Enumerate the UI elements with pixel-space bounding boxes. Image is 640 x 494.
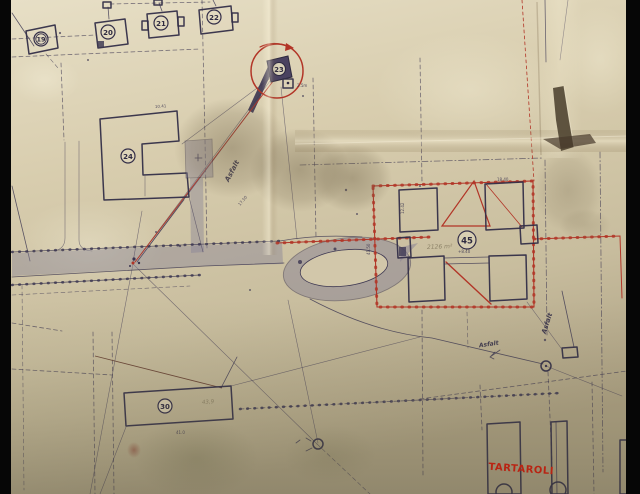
dimension-label: 18.40	[497, 177, 509, 182]
building-45-label: 45	[461, 236, 473, 246]
building-22-label: 22	[209, 14, 219, 22]
stain	[312, 144, 392, 212]
building-19-label: 19	[36, 36, 46, 44]
survey-dot	[249, 289, 251, 291]
building-24-label: 24	[123, 153, 133, 161]
site-plan-svg: 19 20 21 22 23 24 45 30 Asfalt Asfalt As…	[0, 0, 640, 494]
survey-dot	[179, 245, 181, 247]
photo-left-edge	[0, 0, 11, 494]
building-20-label: 20	[103, 29, 113, 37]
survey-dot	[419, 185, 421, 187]
building-21-label: 21	[156, 20, 166, 28]
paper-light-patch	[15, 200, 165, 290]
paper-light-patch	[10, 56, 80, 104]
building-45-notch-fill	[399, 247, 406, 256]
dimension-label: 12.42	[400, 202, 405, 214]
benchmark-dot	[287, 82, 290, 85]
site-plan-photo: 19 20 21 22 23 24 45 30 Asfalt Asfalt As…	[0, 0, 640, 494]
survey-dot	[87, 59, 89, 61]
loop-mark	[334, 248, 337, 251]
survey-dot	[59, 32, 61, 34]
survey-dot	[302, 95, 304, 97]
dimension-label: 41.50	[366, 243, 371, 255]
photo-right-edge	[626, 0, 640, 494]
dimension-label: 10.41	[155, 103, 167, 109]
junction-mark	[129, 265, 131, 267]
building-20-annex	[98, 41, 104, 47]
loop-mark	[298, 260, 302, 264]
dimension-label: +8.40	[458, 249, 471, 254]
bottom-vignette	[10, 300, 628, 494]
annotation-area-pencil: 2126 m²	[427, 243, 453, 251]
junction-mark	[138, 262, 140, 264]
annotation-marker-height: 2.5m	[297, 83, 307, 88]
fold-crease-vertical	[262, 0, 278, 255]
stain	[559, 209, 611, 241]
survey-dot	[356, 213, 358, 215]
survey-dot	[155, 231, 157, 233]
